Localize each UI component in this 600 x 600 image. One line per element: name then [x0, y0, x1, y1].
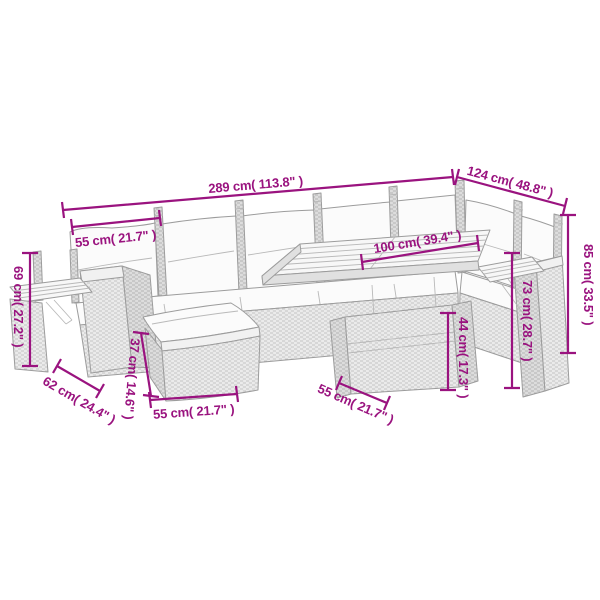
shelf-left-bracket: [46, 300, 72, 324]
dim-footstool-depth-label: 62 cm( 24.4" ): [40, 373, 118, 427]
dim-footstool-width-label: 55 cm( 21.7" ): [153, 401, 235, 422]
dim-armrest-shelf-height-label: 69 cm( 27.2" ): [11, 266, 26, 347]
product-dimension-diagram: 289 cm( 113.8" ) 124 cm( 48.8" ) 55 cm( …: [0, 0, 600, 600]
dim-total-depth-label: 124 cm( 48.8" ): [466, 163, 555, 200]
sofa-line-art: [10, 180, 569, 401]
dim-table-base-height-label: 44 cm( 17.3" ): [456, 317, 471, 398]
dim-backrest-height-label: 85 cm( 33.5" ): [581, 244, 596, 325]
dim-side-shelf-height-label: 73 cm( 28.7" ): [520, 280, 535, 361]
dim-total-width-label: 289 cm( 113.8" ): [208, 173, 304, 196]
furniture-illustration: 289 cm( 113.8" ) 124 cm( 48.8" ) 55 cm( …: [0, 0, 600, 600]
table-base-front: [345, 305, 459, 394]
